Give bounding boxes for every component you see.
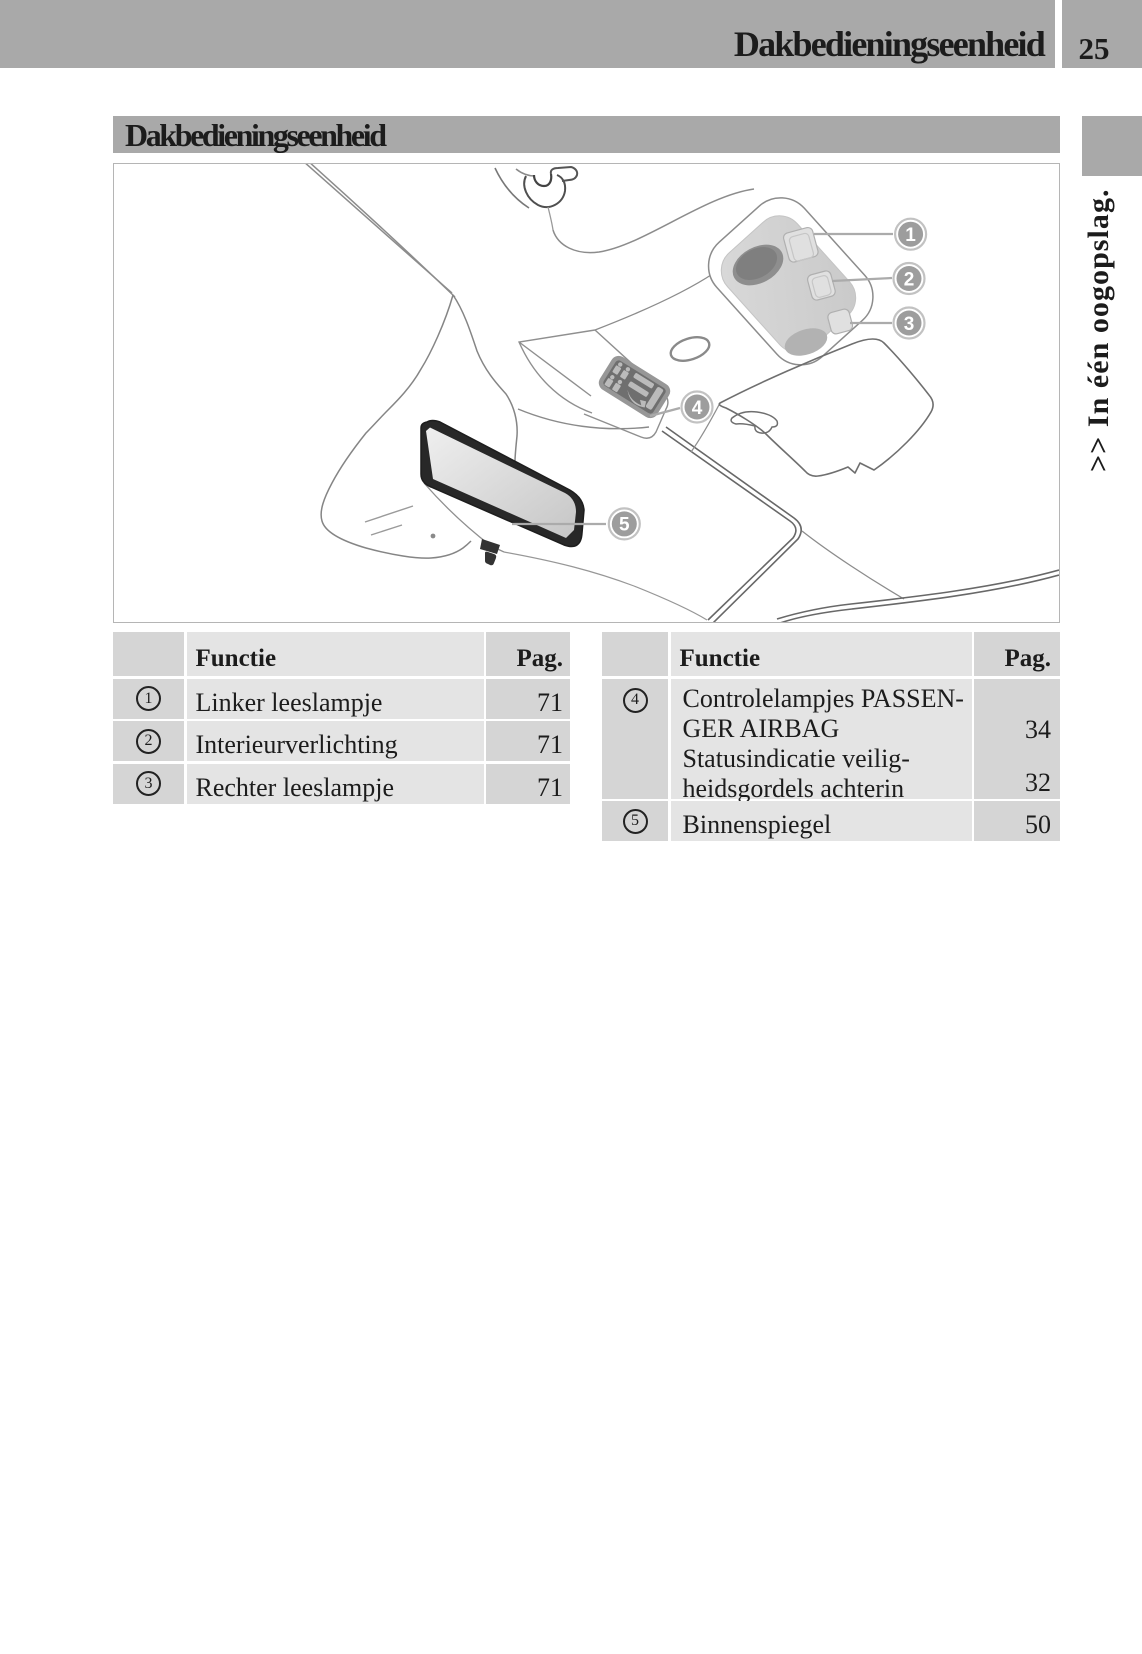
svg-text:2: 2 [904, 269, 915, 290]
svg-text:3: 3 [904, 314, 915, 335]
svg-text:1: 1 [905, 225, 916, 246]
svg-text:4: 4 [692, 398, 703, 419]
svg-text:5: 5 [619, 515, 630, 536]
